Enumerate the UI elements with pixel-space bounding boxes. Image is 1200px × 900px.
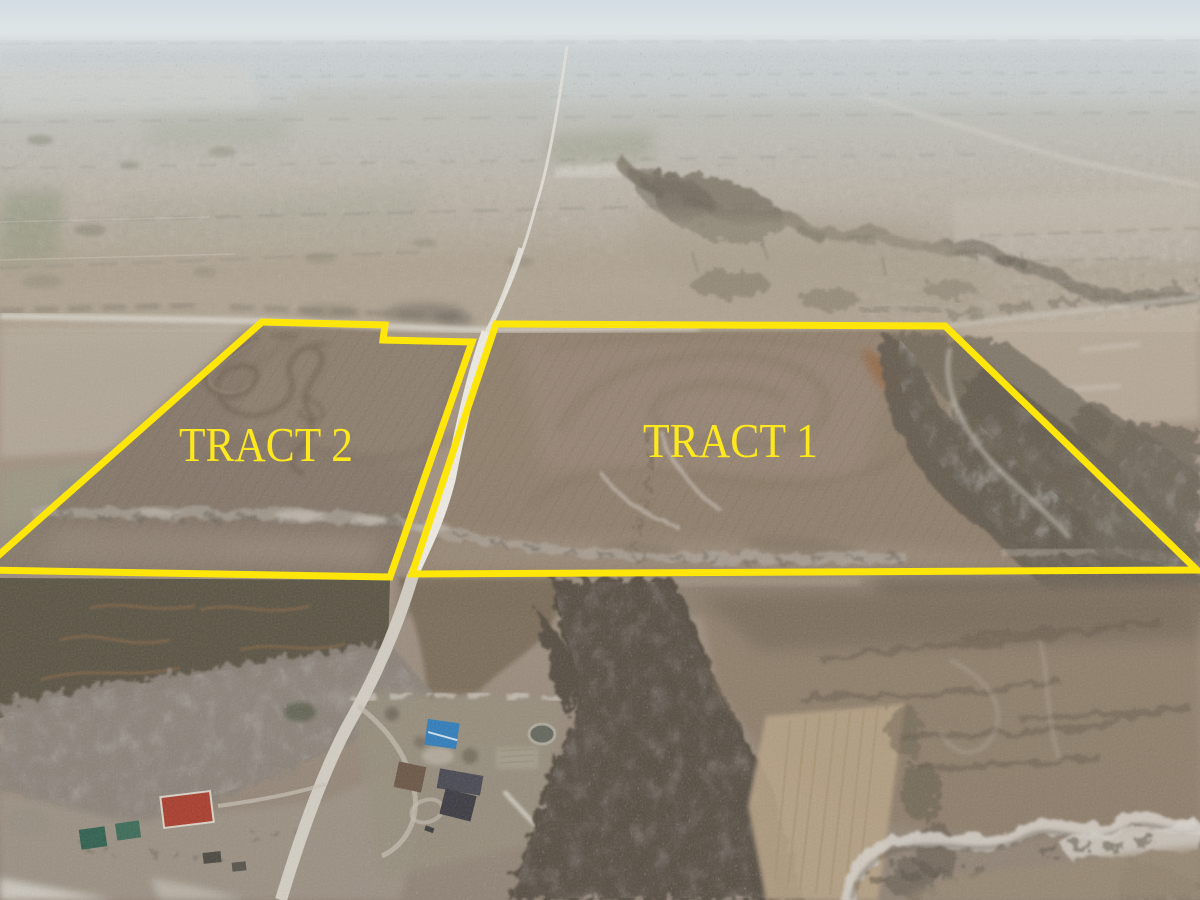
svg-text:TRACT 2: TRACT 2	[179, 417, 353, 472]
svg-text:TRACT 1: TRACT 1	[643, 413, 818, 468]
